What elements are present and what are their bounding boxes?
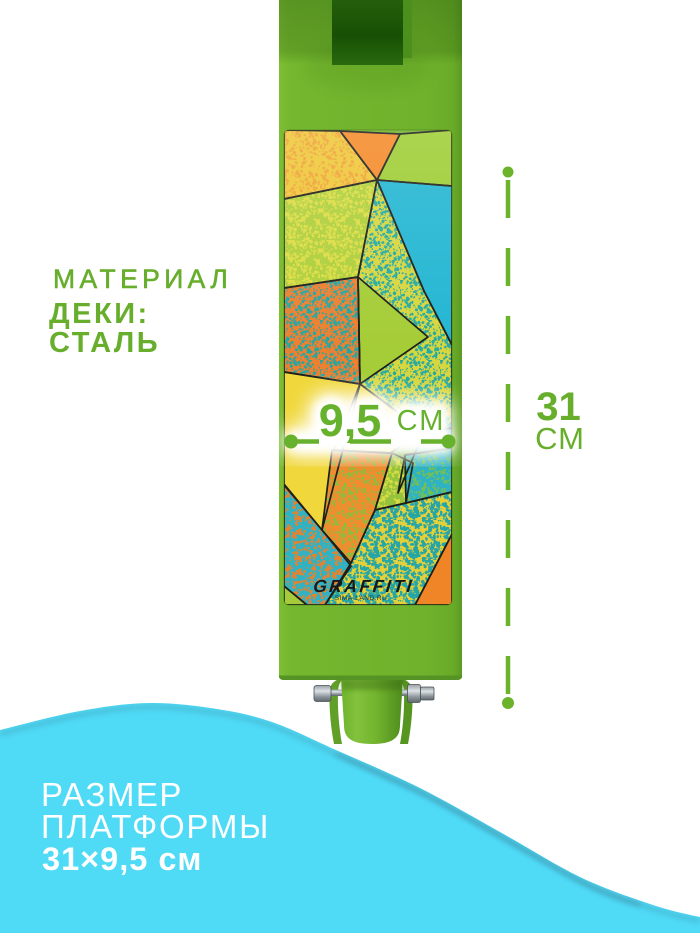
svg-text:31×9,5 см: 31×9,5 см	[42, 841, 202, 877]
svg-text:СМ: СМ	[535, 421, 585, 456]
svg-text:ПЛАТФОРМЫ: ПЛАТФОРМЫ	[41, 808, 270, 845]
svg-text:СМ: СМ	[397, 405, 446, 437]
svg-text:ДЕКИ:: ДЕКИ:	[49, 298, 150, 330]
svg-text:SIMA-LAND.RU: SIMA-LAND.RU	[335, 595, 388, 602]
svg-text:GRAFFITI: GRAFFITI	[312, 576, 415, 596]
svg-text:9,5: 9,5	[319, 395, 382, 446]
svg-text:МАТЕРИАЛ: МАТЕРИАЛ	[53, 264, 232, 294]
svg-text:СТАЛЬ: СТАЛЬ	[49, 327, 160, 359]
